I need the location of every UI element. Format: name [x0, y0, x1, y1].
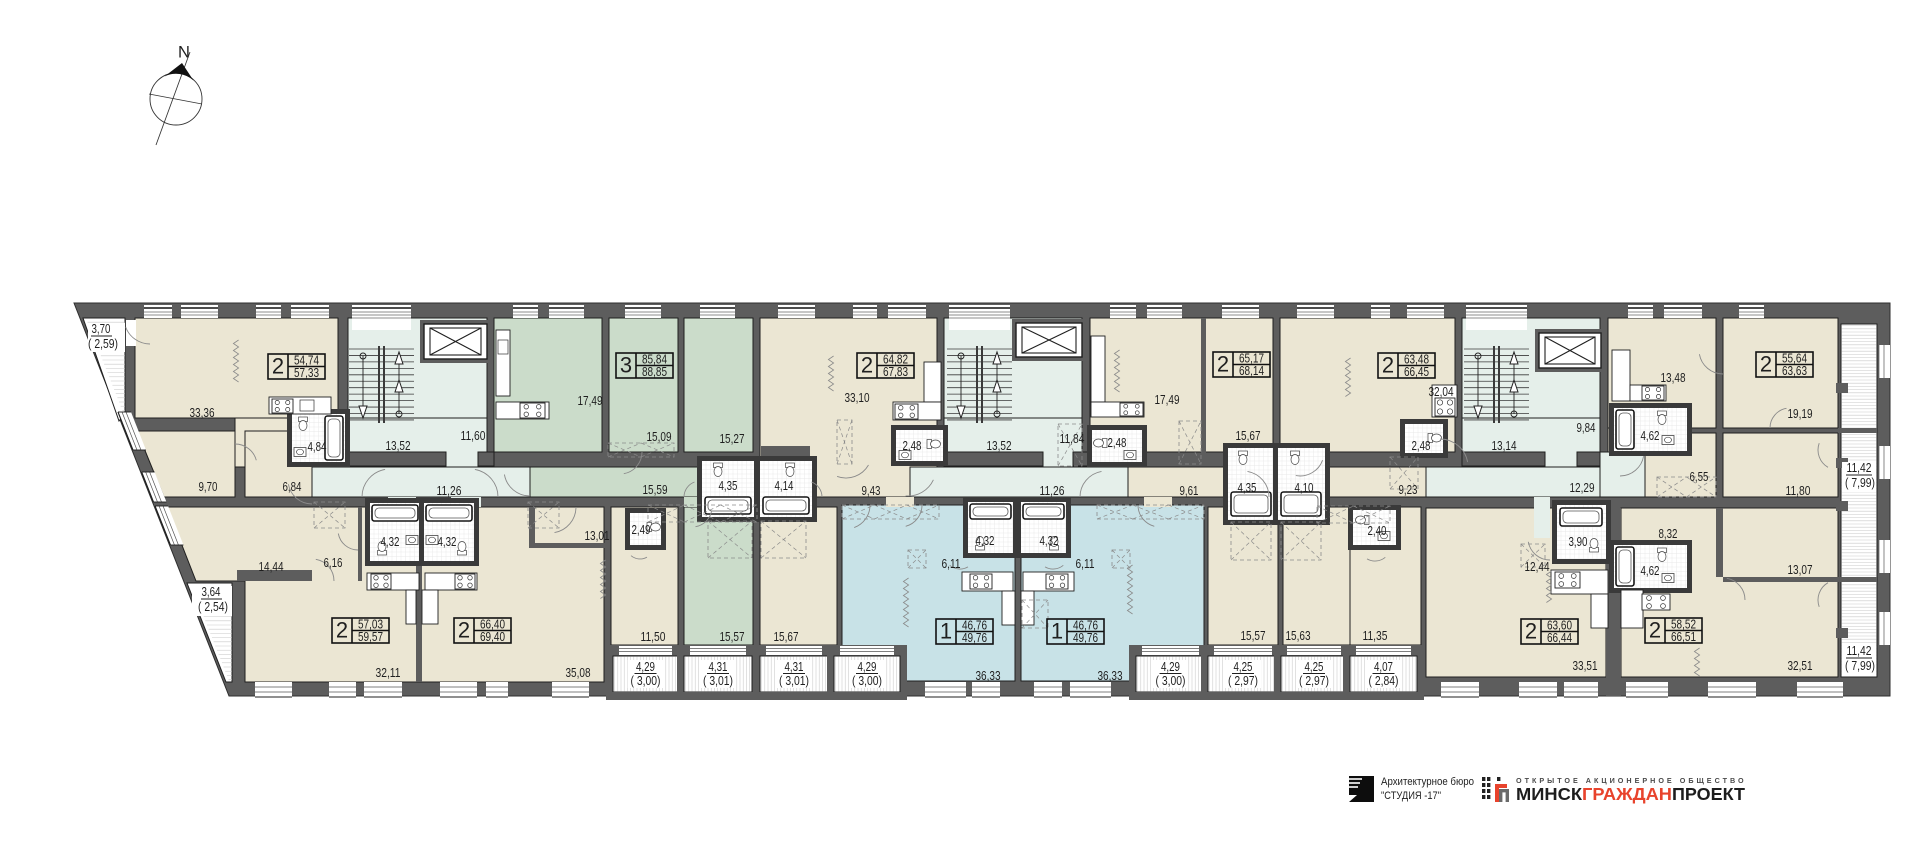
- svg-text:11,80: 11,80: [1786, 484, 1811, 498]
- svg-text:4,14: 4,14: [775, 479, 794, 493]
- svg-text:49,76: 49,76: [1073, 631, 1098, 645]
- svg-text:68,14: 68,14: [1239, 364, 1264, 378]
- svg-text:4,62: 4,62: [1641, 429, 1660, 443]
- svg-text:15,57: 15,57: [720, 630, 745, 644]
- svg-text:6,11: 6,11: [942, 557, 961, 571]
- svg-text:4,32: 4,32: [438, 535, 457, 549]
- svg-text:4,07: 4,07: [1374, 660, 1393, 674]
- svg-text:4,32: 4,32: [976, 534, 995, 548]
- svg-text:4,35: 4,35: [1238, 481, 1257, 495]
- svg-text:( 3,00): ( 3,00): [852, 674, 882, 688]
- svg-text:4,31: 4,31: [785, 660, 804, 674]
- svg-text:15,27: 15,27: [720, 432, 745, 446]
- svg-text:2: 2: [272, 354, 284, 379]
- svg-text:2: 2: [1382, 353, 1394, 378]
- svg-text:69,40: 69,40: [480, 630, 505, 644]
- svg-text:11,26: 11,26: [437, 484, 462, 498]
- svg-text:6,11: 6,11: [1076, 557, 1095, 571]
- svg-text:4,35: 4,35: [719, 479, 738, 493]
- svg-text:4,29: 4,29: [1161, 660, 1180, 674]
- svg-text:15,57: 15,57: [1241, 629, 1266, 643]
- svg-text:15,67: 15,67: [1236, 429, 1261, 443]
- svg-text:9,61: 9,61: [1180, 484, 1199, 498]
- svg-text:13,14: 13,14: [1492, 439, 1517, 453]
- svg-text:МИНСК: МИНСК: [1516, 784, 1582, 804]
- svg-text:36,33: 36,33: [976, 669, 1001, 683]
- svg-text:( 3,01): ( 3,01): [779, 674, 809, 688]
- svg-text:2: 2: [861, 353, 873, 378]
- svg-text:3,64: 3,64: [202, 585, 221, 599]
- svg-text:33,51: 33,51: [1573, 659, 1598, 673]
- svg-text:4,29: 4,29: [858, 660, 877, 674]
- svg-text:N: N: [178, 44, 190, 62]
- svg-text:13,52: 13,52: [386, 439, 411, 453]
- svg-text:4,62: 4,62: [1641, 564, 1660, 578]
- svg-text:35,08: 35,08: [566, 666, 591, 680]
- svg-text:4,25: 4,25: [1234, 660, 1253, 674]
- svg-text:( 3,00): ( 3,00): [1156, 674, 1186, 688]
- svg-text:( 7,99): ( 7,99): [1845, 476, 1875, 490]
- svg-text:36,33: 36,33: [1098, 669, 1123, 683]
- svg-text:4,25: 4,25: [1305, 660, 1324, 674]
- svg-text:11,60: 11,60: [461, 429, 486, 443]
- svg-text:( 2,59): ( 2,59): [88, 337, 118, 351]
- svg-text:( 3,01): ( 3,01): [703, 674, 733, 688]
- svg-text:3,90: 3,90: [1569, 535, 1588, 549]
- svg-text:11,26: 11,26: [1040, 484, 1065, 498]
- svg-text:13,48: 13,48: [1661, 371, 1686, 385]
- svg-text:( 2,84): ( 2,84): [1369, 674, 1399, 688]
- svg-text:9,84: 9,84: [1577, 421, 1596, 435]
- svg-text:2,48: 2,48: [1412, 439, 1431, 453]
- svg-text:15,63: 15,63: [1286, 629, 1311, 643]
- svg-text:11,84: 11,84: [1060, 432, 1085, 446]
- svg-text:6,16: 6,16: [324, 556, 343, 570]
- svg-text:11,42: 11,42: [1847, 461, 1872, 475]
- svg-text:9,43: 9,43: [862, 484, 881, 498]
- svg-text:17,49: 17,49: [578, 394, 603, 408]
- svg-text:15,67: 15,67: [774, 630, 799, 644]
- svg-text:2: 2: [1649, 618, 1661, 643]
- svg-text:11,35: 11,35: [1363, 629, 1388, 643]
- svg-text:33,10: 33,10: [845, 391, 870, 405]
- svg-text:8,32: 8,32: [1659, 527, 1678, 541]
- svg-text:( 2,54): ( 2,54): [198, 600, 228, 614]
- svg-text:( 3,00): ( 3,00): [631, 674, 661, 688]
- svg-text:15,09: 15,09: [647, 430, 672, 444]
- svg-text:19,19: 19,19: [1788, 407, 1813, 421]
- svg-text:88,85: 88,85: [642, 365, 667, 379]
- svg-text:4,29: 4,29: [636, 660, 655, 674]
- svg-text:2,48: 2,48: [903, 439, 922, 453]
- svg-text:Архитектурное бюро: Архитектурное бюро: [1381, 776, 1474, 788]
- svg-text:2: 2: [1760, 352, 1772, 377]
- svg-text:9,23: 9,23: [1399, 483, 1418, 497]
- svg-text:13,07: 13,07: [1788, 563, 1813, 577]
- svg-text:66,51: 66,51: [1671, 630, 1696, 644]
- svg-text:11,42: 11,42: [1847, 644, 1872, 658]
- svg-text:66,44: 66,44: [1547, 631, 1572, 645]
- svg-text:67,83: 67,83: [883, 365, 908, 379]
- svg-text:"СТУДИЯ -17": "СТУДИЯ -17": [1381, 790, 1441, 802]
- svg-text:( 7,99): ( 7,99): [1845, 659, 1875, 673]
- svg-text:ПРОЕКТ: ПРОЕКТ: [1672, 784, 1745, 804]
- svg-text:59,57: 59,57: [358, 630, 383, 644]
- svg-text:2: 2: [458, 618, 470, 643]
- svg-text:4,10: 4,10: [1295, 481, 1314, 495]
- svg-text:32,51: 32,51: [1788, 659, 1813, 673]
- svg-text:66,45: 66,45: [1404, 365, 1429, 379]
- svg-text:57,33: 57,33: [294, 366, 319, 380]
- svg-text:( 2,97): ( 2,97): [1299, 674, 1329, 688]
- svg-text:49,76: 49,76: [962, 631, 987, 645]
- svg-text:2: 2: [1525, 619, 1537, 644]
- svg-text:1: 1: [940, 619, 952, 644]
- svg-text:63,63: 63,63: [1782, 364, 1807, 378]
- svg-text:2: 2: [336, 618, 348, 643]
- svg-text:2,40: 2,40: [1368, 524, 1387, 538]
- svg-text:4,32: 4,32: [381, 535, 400, 549]
- svg-text:9,70: 9,70: [199, 480, 218, 494]
- svg-text:13,01: 13,01: [585, 529, 610, 543]
- svg-text:32,11: 32,11: [376, 666, 401, 680]
- svg-text:15,59: 15,59: [643, 483, 668, 497]
- svg-text:12,44: 12,44: [1525, 560, 1550, 574]
- svg-text:2,48: 2,48: [1108, 436, 1127, 450]
- svg-text:4,84: 4,84: [308, 440, 327, 454]
- svg-text:11,50: 11,50: [641, 630, 666, 644]
- svg-text:3: 3: [620, 353, 632, 378]
- svg-text:6,55: 6,55: [1690, 470, 1709, 484]
- svg-text:17,49: 17,49: [1155, 393, 1180, 407]
- svg-text:( 2,97): ( 2,97): [1228, 674, 1258, 688]
- svg-text:2: 2: [1217, 352, 1229, 377]
- svg-text:6,84: 6,84: [283, 480, 302, 494]
- svg-text:ГРАЖДАН: ГРАЖДАН: [1582, 784, 1672, 804]
- svg-text:4,31: 4,31: [709, 660, 728, 674]
- svg-text:13,52: 13,52: [987, 439, 1012, 453]
- svg-text:4,32: 4,32: [1040, 534, 1059, 548]
- svg-text:1: 1: [1051, 619, 1063, 644]
- svg-text:2,49: 2,49: [632, 523, 651, 537]
- svg-text:3,70: 3,70: [92, 322, 111, 336]
- svg-text:14,44: 14,44: [259, 560, 284, 574]
- svg-text:12,29: 12,29: [1570, 481, 1595, 495]
- svg-text:32,04: 32,04: [1429, 385, 1454, 399]
- svg-text:33,36: 33,36: [190, 406, 215, 420]
